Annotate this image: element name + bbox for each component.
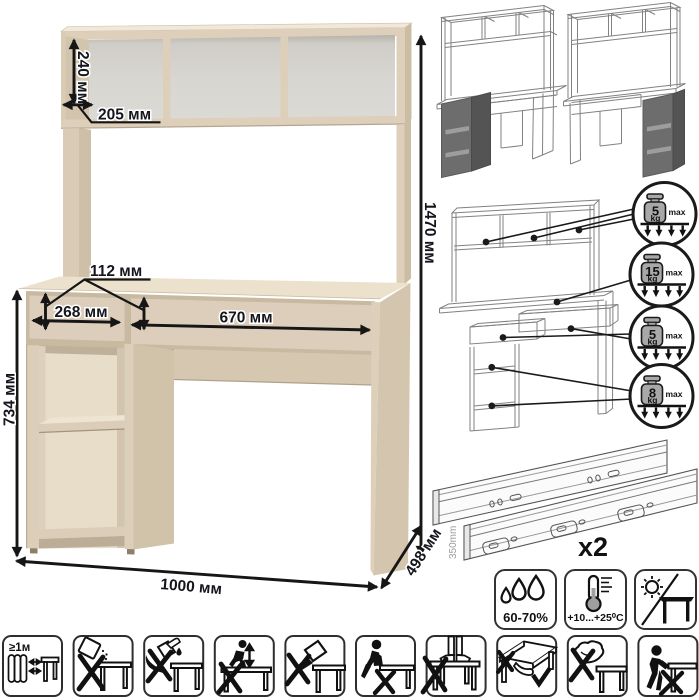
svg-text:kg: kg [648,273,658,283]
svg-text:205 мм: 205 мм [98,107,151,124]
svg-text:kg: kg [651,213,661,223]
svg-text:1470 мм: 1470 мм [421,202,438,264]
svg-text:60-70%: 60-70% [503,610,548,625]
svg-text:kg: kg [648,395,658,405]
svg-text:1000 мм: 1000 мм [160,576,223,598]
svg-text:kg: kg [648,336,658,346]
svg-text:240 мм: 240 мм [74,51,91,104]
svg-text:498 мм: 498 мм [402,525,445,579]
svg-text:268 мм: 268 мм [55,304,108,321]
svg-text:max: max [666,331,683,341]
svg-text:max: max [666,389,683,399]
svg-text:max: max [666,268,683,278]
svg-text:+10...+25⁰C: +10...+25⁰C [567,612,624,624]
svg-text:x2: x2 [578,532,608,562]
svg-text:112 мм: 112 мм [90,263,142,280]
svg-text:670 мм: 670 мм [220,310,273,327]
svg-text:≥1м: ≥1м [9,642,30,654]
svg-text:350mm: 350mm [448,526,459,559]
svg-text:734 мм: 734 мм [2,373,19,426]
svg-text:max: max [669,207,686,217]
